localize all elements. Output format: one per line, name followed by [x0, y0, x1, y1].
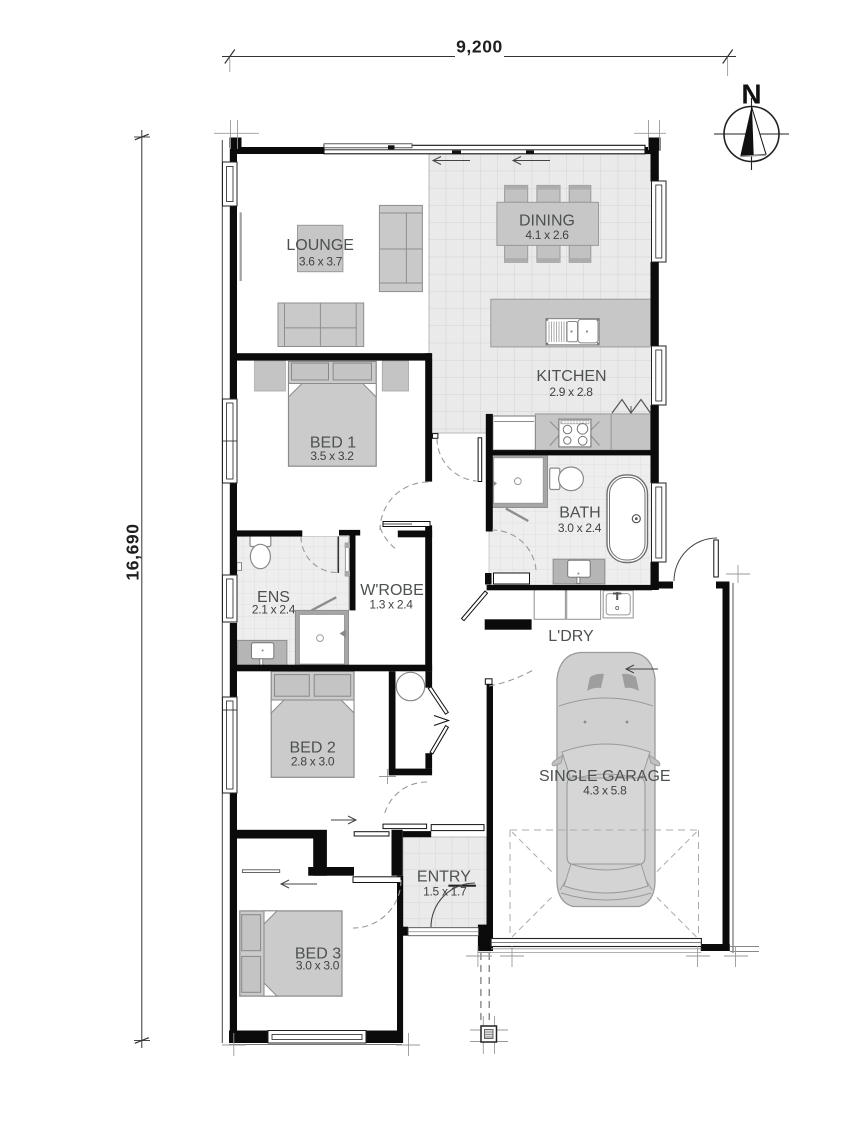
- svg-text:ENTRY: ENTRY: [417, 868, 471, 885]
- svg-text:3.6 x 3.7: 3.6 x 3.7: [299, 254, 343, 268]
- svg-text:3.0 x 2.4: 3.0 x 2.4: [558, 521, 602, 535]
- svg-text:2.1 x 2.4: 2.1 x 2.4: [252, 602, 296, 616]
- svg-text:BATH: BATH: [559, 505, 600, 522]
- svg-text:SINGLE GARAGE: SINGLE GARAGE: [539, 768, 671, 785]
- svg-text:16,690: 16,690: [123, 523, 143, 580]
- svg-text:KITCHEN: KITCHEN: [536, 368, 606, 385]
- svg-text:9,200: 9,200: [456, 37, 503, 57]
- svg-text:LOUNGE: LOUNGE: [286, 237, 354, 254]
- svg-text:4.1 x 2.6: 4.1 x 2.6: [525, 228, 569, 242]
- svg-text:4.3 x 5.8: 4.3 x 5.8: [583, 784, 627, 798]
- svg-text:DINING: DINING: [519, 212, 575, 229]
- svg-text:3.5 x 3.2: 3.5 x 3.2: [310, 449, 354, 463]
- svg-text:3.0 x 3.0: 3.0 x 3.0: [296, 959, 340, 973]
- svg-text:1.5 x 1.7: 1.5 x 1.7: [423, 885, 467, 899]
- svg-text:L'DRY: L'DRY: [548, 628, 594, 645]
- svg-text:1.3 x 2.4: 1.3 x 2.4: [369, 598, 413, 612]
- svg-text:N: N: [741, 79, 761, 110]
- svg-text:2.9 x 2.8: 2.9 x 2.8: [549, 385, 593, 399]
- svg-text:2.8 x 3.0: 2.8 x 3.0: [291, 755, 335, 769]
